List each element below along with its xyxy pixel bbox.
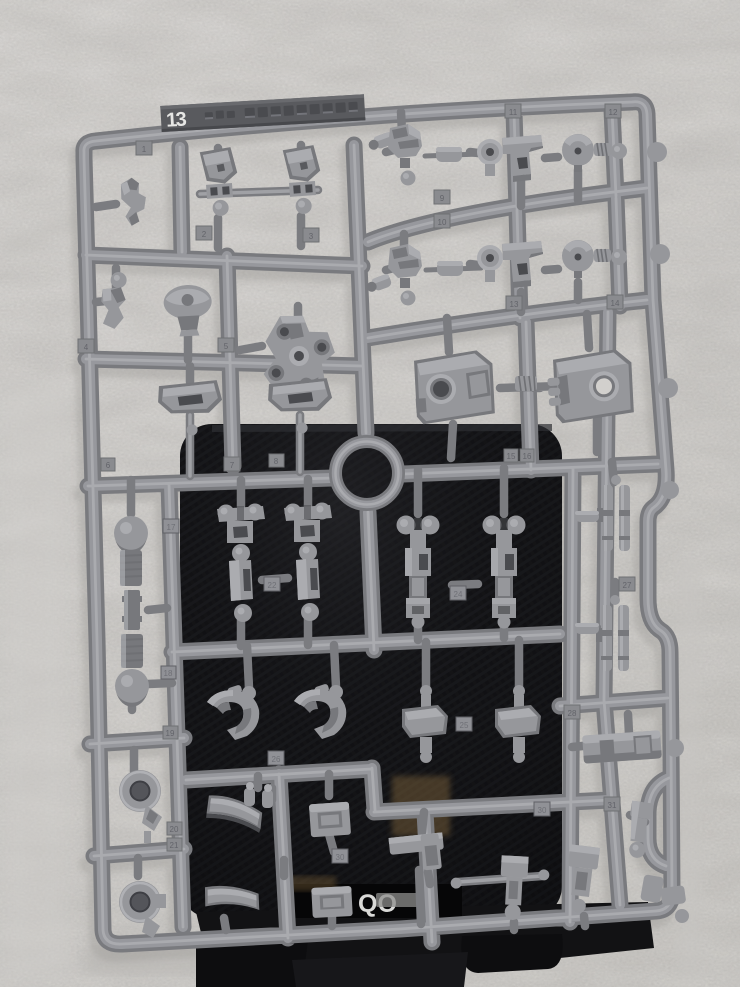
svg-text:16: 16 [523, 452, 532, 461]
svg-text:14: 14 [611, 299, 620, 308]
svg-text:6: 6 [106, 461, 111, 470]
svg-text:3: 3 [309, 232, 314, 241]
svg-text:24: 24 [454, 590, 463, 599]
svg-text:27: 27 [623, 581, 632, 590]
svg-text:26: 26 [272, 755, 281, 764]
svg-text:22: 22 [268, 581, 277, 590]
svg-text:18: 18 [164, 669, 173, 678]
svg-text:31: 31 [608, 801, 617, 810]
svg-text:20: 20 [170, 825, 179, 834]
svg-text:5: 5 [224, 342, 229, 351]
svg-text:11: 11 [509, 108, 518, 117]
svg-text:10: 10 [438, 218, 447, 227]
svg-text:13: 13 [165, 109, 187, 132]
svg-text:25: 25 [460, 721, 469, 730]
svg-text:21: 21 [170, 841, 179, 850]
svg-text:28: 28 [568, 709, 577, 718]
svg-text:30: 30 [336, 853, 345, 862]
svg-text:9: 9 [440, 194, 445, 203]
svg-text:19: 19 [166, 729, 175, 738]
svg-text:8: 8 [274, 457, 279, 466]
svg-text:2: 2 [202, 230, 207, 239]
svg-text:7: 7 [230, 461, 235, 470]
svg-text:4: 4 [84, 343, 89, 352]
svg-text:1: 1 [142, 145, 147, 154]
svg-text:15: 15 [507, 452, 516, 461]
svg-text:12: 12 [609, 108, 618, 117]
svg-text:13: 13 [510, 300, 519, 309]
svg-text:30: 30 [538, 806, 547, 815]
svg-text:17: 17 [167, 523, 176, 532]
